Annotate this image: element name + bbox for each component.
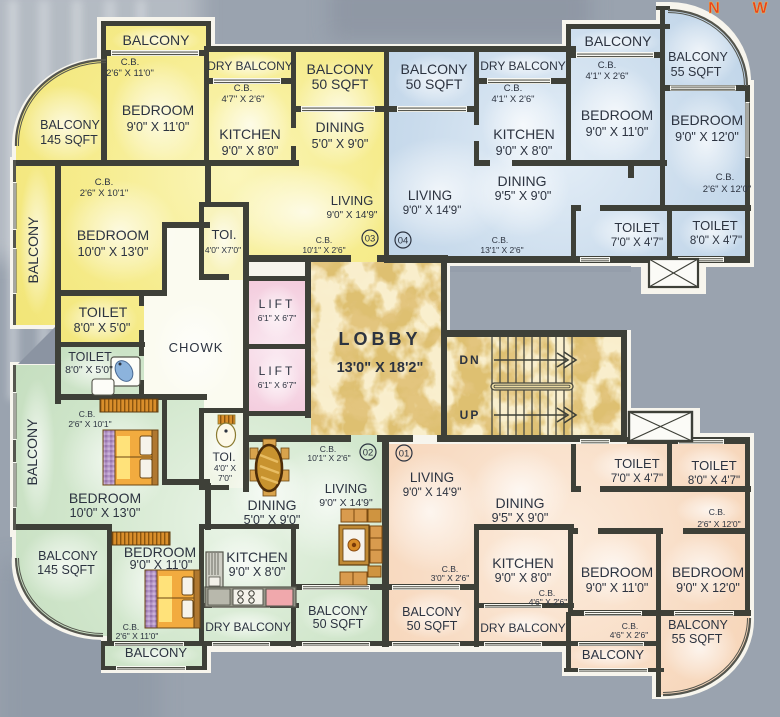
svg-text:LIVING: LIVING [410, 470, 454, 485]
svg-text:DINING: DINING [498, 173, 547, 189]
svg-text:2'6" X 11'0": 2'6" X 11'0" [116, 631, 159, 641]
svg-text:9'0" X 14'9": 9'0" X 14'9" [403, 205, 462, 217]
svg-text:KITCHEN: KITCHEN [492, 555, 553, 571]
svg-text:DRY BALCONY: DRY BALCONY [205, 620, 291, 634]
svg-text:TOILET: TOILET [692, 218, 737, 233]
svg-text:TOILET: TOILET [614, 456, 659, 471]
svg-text:8'0" X 5'0": 8'0" X 5'0" [65, 364, 113, 376]
svg-text:9'0" X 12'0": 9'0" X 12'0" [676, 581, 740, 595]
svg-text:03: 03 [365, 234, 376, 245]
svg-text:DINING: DINING [496, 495, 545, 511]
svg-text:BEDROOM: BEDROOM [672, 564, 744, 580]
svg-text:10'0" X 13'0": 10'0" X 13'0" [78, 245, 149, 259]
svg-text:BALCONY: BALCONY [582, 647, 644, 662]
svg-text:LIFT: LIFT [259, 297, 296, 311]
svg-text:BALCONY: BALCONY [25, 216, 41, 284]
svg-text:4'6" X 2'6": 4'6" X 2'6" [610, 630, 649, 640]
svg-text:9'5" X 9'0": 9'5" X 9'0" [492, 511, 549, 525]
svg-text:DRY BALCONY: DRY BALCONY [480, 621, 566, 635]
svg-text:W: W [752, 0, 768, 17]
svg-text:9'0" X 14'9": 9'0" X 14'9" [403, 487, 462, 499]
svg-text:DINING: DINING [316, 119, 365, 135]
svg-text:BEDROOM: BEDROOM [581, 107, 653, 123]
svg-text:KITCHEN: KITCHEN [219, 126, 280, 142]
svg-text:TOI.: TOI. [211, 227, 236, 242]
svg-text:13'1" X 2'6": 13'1" X 2'6" [480, 245, 523, 255]
svg-text:DRY BALCONY: DRY BALCONY [480, 59, 566, 73]
svg-text:TOILET: TOILET [691, 458, 736, 473]
svg-text:UP: UP [460, 408, 481, 422]
svg-text:9'0" X 14'9": 9'0" X 14'9" [327, 210, 378, 221]
svg-text:10'1" X 2'6": 10'1" X 2'6" [302, 245, 345, 255]
svg-text:4'1" X 2'6": 4'1" X 2'6" [491, 94, 534, 105]
svg-text:TOILET: TOILET [68, 350, 112, 364]
svg-text:9'0" X 11'0": 9'0" X 11'0" [127, 120, 190, 134]
svg-text:4'0" X: 4'0" X [214, 463, 236, 473]
svg-text:LIVING: LIVING [408, 188, 452, 203]
svg-text:5'0" X 9'0": 5'0" X 9'0" [312, 137, 369, 151]
svg-text:4'1" X 2'6": 4'1" X 2'6" [585, 71, 628, 82]
svg-text:145 SQFT: 145 SQFT [37, 563, 95, 577]
svg-text:KITCHEN: KITCHEN [493, 126, 554, 142]
svg-text:C.B.: C.B. [234, 83, 252, 94]
svg-text:BEDROOM: BEDROOM [69, 490, 141, 506]
svg-text:TOILET: TOILET [614, 220, 659, 235]
svg-text:BALCONY: BALCONY [125, 645, 187, 660]
svg-text:2'6" X 12'0": 2'6" X 12'0" [703, 184, 751, 195]
svg-text:55 SQFT: 55 SQFT [672, 632, 723, 646]
svg-text:8'0" X 4'7": 8'0" X 4'7" [688, 475, 740, 487]
svg-text:TOI.: TOI. [212, 450, 235, 464]
svg-text:C.B.: C.B. [492, 235, 509, 245]
svg-text:BALCONY: BALCONY [308, 604, 368, 618]
svg-text:BALCONY: BALCONY [668, 50, 728, 64]
svg-text:LIVING: LIVING [331, 193, 374, 208]
svg-text:C.B.: C.B. [79, 409, 96, 419]
svg-text:50 SQFT: 50 SQFT [312, 76, 369, 92]
svg-text:BALCONY: BALCONY [40, 118, 100, 132]
svg-text:DN: DN [459, 353, 480, 367]
svg-text:BEDROOM: BEDROOM [77, 227, 149, 243]
svg-text:9'0" X 12'0": 9'0" X 12'0" [675, 130, 739, 144]
svg-text:BALCONY: BALCONY [668, 618, 728, 632]
svg-text:LIFT: LIFT [259, 364, 296, 378]
svg-text:04: 04 [398, 236, 409, 247]
svg-text:KITCHEN: KITCHEN [226, 549, 287, 565]
svg-text:10'0" X 13'0": 10'0" X 13'0" [70, 506, 141, 520]
svg-text:145 SQFT: 145 SQFT [40, 133, 98, 147]
svg-text:C.B.: C.B. [598, 60, 616, 71]
svg-text:9'0" X 14'9": 9'0" X 14'9" [319, 497, 373, 509]
svg-text:C.B.: C.B. [716, 172, 734, 183]
svg-text:BEDROOM: BEDROOM [671, 112, 743, 128]
svg-text:7'0" X 4'7": 7'0" X 4'7" [611, 237, 663, 249]
svg-text:BALCONY: BALCONY [24, 418, 40, 486]
svg-text:LOBBY: LOBBY [339, 329, 422, 349]
svg-text:BALCONY: BALCONY [307, 61, 375, 77]
svg-text:BALCONY: BALCONY [402, 605, 462, 619]
svg-text:DINING: DINING [248, 497, 297, 513]
svg-text:7'0" X 4'7": 7'0" X 4'7" [611, 473, 663, 485]
svg-text:02: 02 [363, 448, 374, 459]
svg-text:DRY BALCONY: DRY BALCONY [207, 59, 293, 73]
svg-text:9'0" X 11'0": 9'0" X 11'0" [130, 558, 193, 572]
svg-text:4'7" X 2'6": 4'7" X 2'6" [221, 94, 264, 105]
svg-text:BEDROOM: BEDROOM [581, 564, 653, 580]
svg-text:C.B.: C.B. [121, 57, 139, 68]
svg-text:2'6" X 11'0": 2'6" X 11'0" [106, 68, 154, 79]
svg-text:50 SQFT: 50 SQFT [313, 617, 364, 631]
svg-text:BALCONY: BALCONY [123, 32, 191, 48]
svg-text:9'0" X 8'0": 9'0" X 8'0" [495, 571, 552, 585]
svg-text:50 SQFT: 50 SQFT [407, 619, 458, 633]
svg-text:13'0" X 18'2": 13'0" X 18'2" [337, 360, 424, 376]
svg-text:LIVING: LIVING [325, 481, 368, 496]
svg-text:9'5" X 9'0": 9'5" X 9'0" [495, 189, 552, 203]
svg-text:C.B.: C.B. [316, 235, 333, 245]
svg-text:9'0" X 8'0": 9'0" X 8'0" [222, 144, 279, 158]
svg-text:6'1" X 6'7": 6'1" X 6'7" [258, 380, 297, 390]
svg-text:5'0" X 9'0": 5'0" X 9'0" [244, 513, 301, 527]
svg-text:BALCONY: BALCONY [585, 33, 653, 49]
svg-text:10'1" X 2'6": 10'1" X 2'6" [307, 453, 350, 463]
svg-text:2'6" X 10'1": 2'6" X 10'1" [80, 188, 128, 199]
svg-text:8'0" X 5'0": 8'0" X 5'0" [74, 321, 131, 335]
svg-text:4'6" X 2'6": 4'6" X 2'6" [529, 597, 568, 607]
svg-text:CHOWK: CHOWK [169, 340, 224, 355]
svg-text:BALCONY: BALCONY [401, 61, 469, 77]
svg-text:BEDROOM: BEDROOM [122, 102, 194, 118]
svg-text:50 SQFT: 50 SQFT [406, 76, 463, 92]
svg-text:6'1" X 6'7": 6'1" X 6'7" [258, 313, 297, 323]
svg-text:C.B.: C.B. [504, 83, 522, 94]
svg-text:C.B.: C.B. [95, 177, 113, 188]
svg-text:9'0" X 11'0": 9'0" X 11'0" [586, 125, 649, 139]
svg-text:8'0" X 4'7": 8'0" X 4'7" [690, 235, 742, 247]
svg-text:TOILET: TOILET [79, 304, 128, 320]
svg-text:C.B.: C.B. [709, 507, 726, 517]
svg-text:N: N [708, 0, 720, 17]
svg-text:9'0" X 8'0": 9'0" X 8'0" [229, 565, 286, 579]
svg-text:BALCONY: BALCONY [38, 549, 98, 563]
svg-text:4'0" X7'0": 4'0" X7'0" [205, 245, 241, 255]
svg-text:55 SQFT: 55 SQFT [671, 65, 722, 79]
svg-text:2'6" X 10'1": 2'6" X 10'1" [68, 419, 111, 429]
svg-text:3'0" X 2'6": 3'0" X 2'6" [431, 573, 470, 583]
svg-text:9'0" X 11'0": 9'0" X 11'0" [586, 581, 649, 595]
svg-text:2'6" X 12'0": 2'6" X 12'0" [697, 519, 740, 529]
svg-text:01: 01 [399, 449, 410, 460]
svg-text:7'0": 7'0" [218, 473, 232, 483]
svg-text:9'0" X 8'0": 9'0" X 8'0" [496, 144, 553, 158]
